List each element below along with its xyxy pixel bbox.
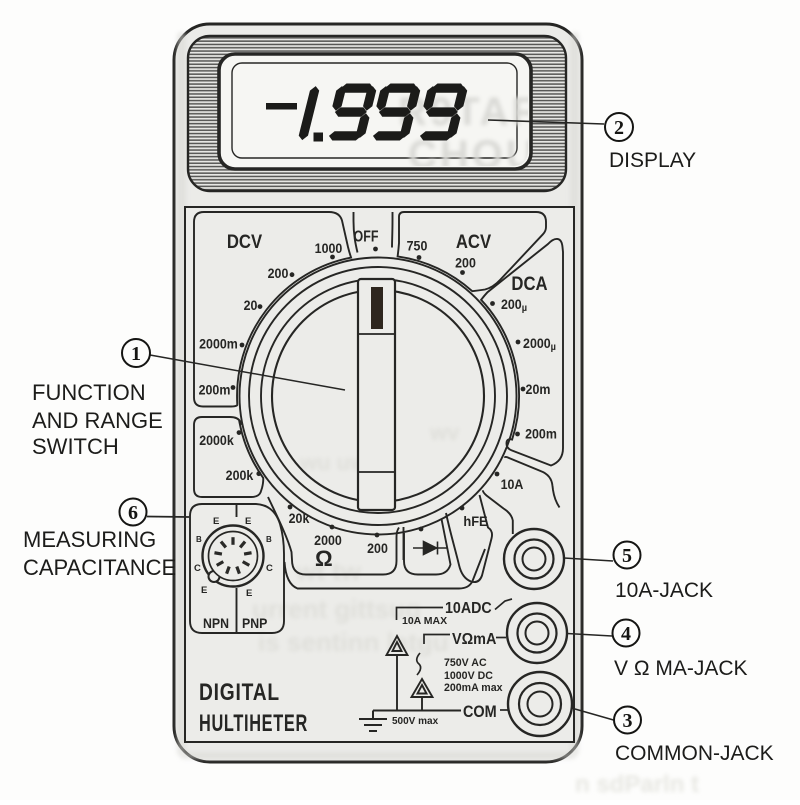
svg-text:2: 2 (614, 117, 624, 139)
svg-text:DIGITAL: DIGITAL (199, 678, 280, 706)
svg-text:hFE: hFE (463, 514, 487, 530)
svg-text:5: 5 (622, 545, 632, 567)
svg-text:DCV: DCV (227, 231, 262, 252)
svg-text:AND RANGE: AND RANGE (32, 408, 163, 433)
svg-text:C: C (266, 563, 273, 574)
svg-text:DISPLAY: DISPLAY (609, 149, 696, 172)
svg-text:20: 20 (244, 298, 258, 314)
svg-text:COM: COM (463, 703, 497, 721)
svg-text:SWITCH: SWITCH (32, 434, 119, 459)
svg-text:200mA max: 200mA max (444, 682, 503, 694)
svg-text:4: 4 (621, 623, 631, 645)
svg-text:2000k: 2000k (199, 433, 234, 449)
svg-text:E: E (245, 516, 251, 527)
svg-text:10A-JACK: 10A-JACK (615, 579, 713, 602)
svg-text:HULTIHETER: HULTIHETER (199, 710, 308, 737)
svg-text:200m: 200m (525, 426, 557, 442)
svg-text:C: C (194, 563, 201, 574)
svg-text:FUNCTION: FUNCTION (32, 380, 146, 405)
svg-text:20m: 20m (526, 382, 551, 398)
svg-text:6: 6 (128, 502, 138, 524)
svg-text:DCA: DCA (511, 273, 547, 294)
svg-text:750: 750 (407, 238, 428, 254)
svg-text:200: 200 (367, 541, 388, 557)
svg-text:wv: wv (429, 420, 460, 445)
svg-text:10A MAX: 10A MAX (402, 615, 447, 627)
svg-text:200: 200 (455, 255, 476, 271)
svg-text:E: E (246, 588, 252, 599)
svg-text:n sdParln t: n sdParln t (575, 771, 699, 798)
svg-text:E: E (201, 585, 207, 596)
svg-text:20k: 20k (289, 511, 310, 527)
svg-text:1000V DC: 1000V DC (444, 670, 493, 682)
svg-text:B: B (266, 535, 272, 544)
svg-text:NPN: NPN (203, 615, 229, 631)
svg-text:OFF: OFF (354, 228, 379, 246)
svg-text:VΩmA: VΩmA (452, 630, 496, 648)
svg-text:200m: 200m (199, 382, 231, 398)
svg-text:R9TAF: R9TAF (398, 90, 539, 134)
svg-text:1: 1 (131, 343, 141, 365)
svg-text:PNP: PNP (242, 615, 268, 631)
svg-text:E: E (213, 516, 219, 527)
svg-text:MEASURING: MEASURING (23, 527, 156, 552)
svg-text:200: 200 (268, 266, 289, 282)
svg-text:1000: 1000 (315, 241, 343, 257)
svg-text:10A: 10A (501, 477, 524, 493)
svg-text:V Ω MA-JACK: V Ω MA-JACK (614, 657, 748, 680)
svg-text:ACV: ACV (456, 231, 491, 252)
svg-text:3: 3 (623, 710, 633, 732)
svg-text:2000m: 2000m (199, 336, 238, 352)
svg-text:B: B (196, 535, 202, 544)
svg-text:750V AC: 750V AC (444, 657, 487, 669)
svg-text:500V max: 500V max (392, 716, 439, 727)
svg-text:is sentinn latgu: is sentinn latgu (258, 627, 449, 657)
svg-text:200k: 200k (226, 468, 254, 484)
svg-text:CAPACITANCE: CAPACITANCE (23, 555, 176, 580)
svg-text:10ADC: 10ADC (445, 601, 492, 618)
svg-text:Ω: Ω (315, 546, 333, 571)
svg-text:COMMON-JACK: COMMON-JACK (615, 742, 774, 765)
